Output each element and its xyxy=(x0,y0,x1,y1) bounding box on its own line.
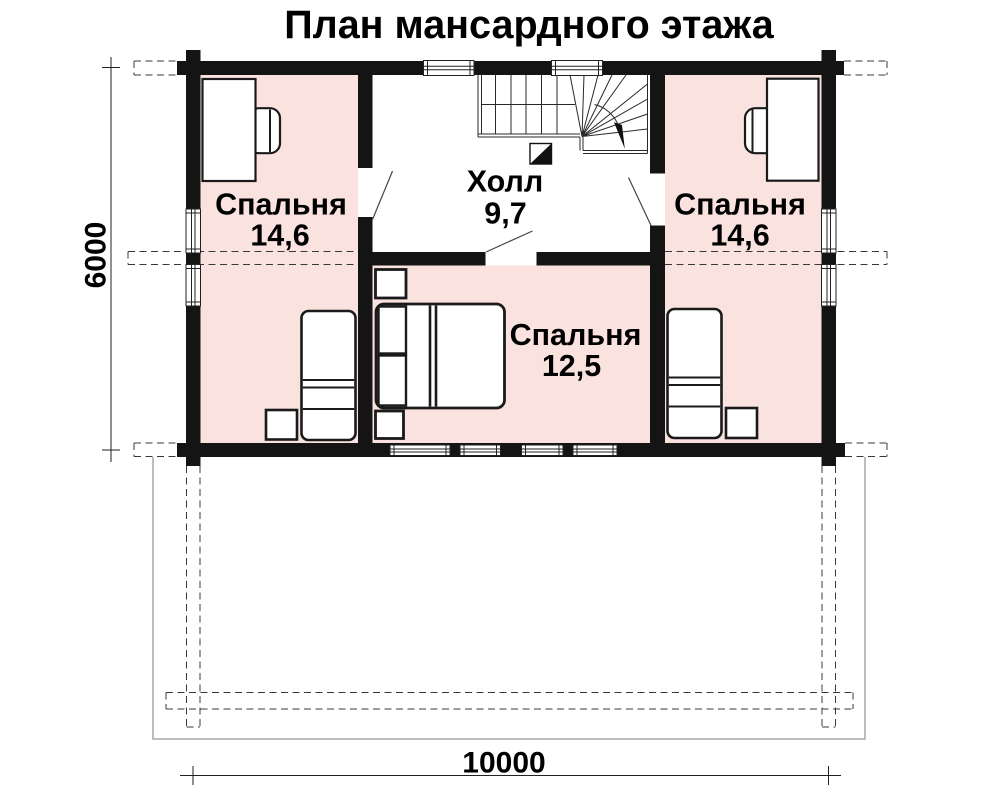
svg-text:Спальня: Спальня xyxy=(674,188,806,222)
svg-text:План мансардного этажа: План мансардного этажа xyxy=(284,3,775,47)
svg-text:9,7: 9,7 xyxy=(484,197,526,231)
svg-text:Спальня: Спальня xyxy=(215,188,347,222)
svg-text:Холл: Холл xyxy=(467,165,544,199)
svg-text:6000: 6000 xyxy=(80,222,113,289)
svg-text:12,5: 12,5 xyxy=(542,349,601,383)
svg-text:14,6: 14,6 xyxy=(250,219,309,253)
svg-text:14,6: 14,6 xyxy=(710,219,769,253)
svg-text:Спальня: Спальня xyxy=(510,318,642,352)
svg-text:10000: 10000 xyxy=(462,747,545,780)
